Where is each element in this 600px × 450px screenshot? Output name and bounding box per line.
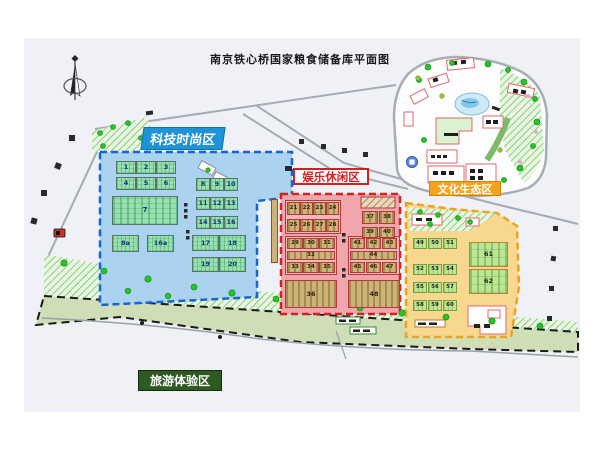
building: 8 <box>196 178 210 191</box>
building: 43 <box>382 238 397 249</box>
building: 21 <box>287 202 300 215</box>
building: 53 <box>428 264 442 275</box>
building: 16 <box>224 216 238 229</box>
building: 6 <box>156 177 176 190</box>
building: 26 <box>300 219 313 232</box>
building: 58 <box>413 300 427 311</box>
building: 37 <box>362 211 378 224</box>
building: 48 <box>348 280 400 308</box>
building: 8a <box>112 235 139 252</box>
building: 49 <box>413 238 427 249</box>
building: 1 <box>116 161 136 174</box>
building: 19 <box>192 257 219 272</box>
building: 33 <box>287 262 303 273</box>
building: 29 <box>287 238 303 249</box>
building: 36 <box>285 280 337 308</box>
building: 27 <box>313 219 326 232</box>
page-title: 南京铁心桥国家粮食储备库平面图 <box>160 51 440 67</box>
building: 11 <box>196 197 210 210</box>
building: 59 <box>428 300 442 311</box>
building: 51 <box>443 238 457 249</box>
building: 47 <box>382 262 397 273</box>
building: 10 <box>224 178 238 191</box>
building: 61 <box>469 242 508 267</box>
building: 40 <box>379 227 395 238</box>
building: 39 <box>362 227 378 238</box>
building: 7 <box>112 196 178 225</box>
building: 15 <box>210 216 224 229</box>
building: 34 <box>303 262 319 273</box>
building: 12 <box>210 197 224 210</box>
building: 44 <box>350 251 397 260</box>
building: 17 <box>192 235 219 251</box>
building: 22 <box>300 202 313 215</box>
building: 28 <box>326 219 339 232</box>
parking-hatched <box>361 197 395 208</box>
building: 9 <box>210 178 224 191</box>
building: 31 <box>319 238 335 249</box>
building: 24 <box>326 202 339 215</box>
building: 23 <box>313 202 326 215</box>
site-plan: 南京铁心桥国家粮食储备库平面图 科技时尚区 娱乐休闲区 文化生态区 旅游体验区 … <box>0 0 600 450</box>
building: 42 <box>366 238 381 249</box>
car-icon <box>54 229 65 237</box>
zone-label-tourism: 旅游体验区 <box>138 370 222 391</box>
building: 54 <box>443 264 457 275</box>
building: 56 <box>428 282 442 293</box>
building: 52 <box>413 264 427 275</box>
zone-label-tech: 科技时尚区 <box>140 127 225 150</box>
building: 14 <box>196 216 210 229</box>
building: 55 <box>413 282 427 293</box>
zone-label-entertainment: 娱乐休闲区 <box>293 168 369 185</box>
building: 60 <box>443 300 457 311</box>
building: 3 <box>156 161 176 174</box>
building: 25 <box>287 219 300 232</box>
building: 35 <box>319 262 335 273</box>
building: 30 <box>303 238 319 249</box>
zone-label-culture: 文化生态区 <box>429 181 501 196</box>
building: 20 <box>219 257 246 272</box>
building: 50 <box>428 238 442 249</box>
building: 2 <box>136 161 156 174</box>
building: 32 <box>287 251 335 260</box>
building: 16a <box>147 235 174 252</box>
building: 62 <box>469 269 508 294</box>
building: 46 <box>366 262 381 273</box>
building: 4 <box>116 177 136 190</box>
building: 45 <box>350 262 365 273</box>
building: 57 <box>443 282 457 293</box>
building: 41 <box>350 238 365 249</box>
building: 5 <box>136 177 156 190</box>
building: 18 <box>219 235 246 251</box>
compass-north-arrow <box>64 55 86 100</box>
building: 38 <box>379 211 395 224</box>
building-strip <box>271 199 278 263</box>
building: 13 <box>224 197 238 210</box>
